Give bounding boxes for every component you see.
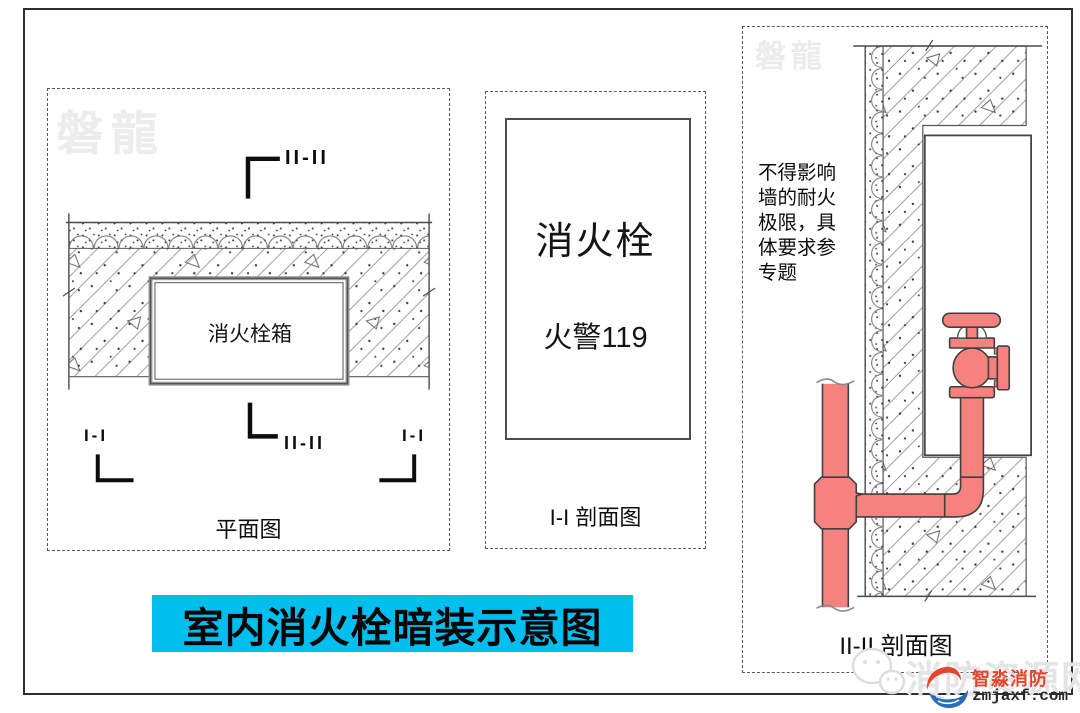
page-title: 室内消火栓暗装示意图 xyxy=(183,594,603,654)
section-label-center: II-II xyxy=(284,433,325,454)
logo-url: zmjaxf.com xyxy=(972,687,1068,705)
note-line: 专题 xyxy=(758,261,868,286)
section-label-left: I-I xyxy=(66,426,126,446)
hydrant-box-label: 消火栓箱 xyxy=(151,280,349,385)
footer-logo: 智淼消防 zmjaxf.com xyxy=(924,664,1074,712)
section-mark-center xyxy=(250,403,278,437)
valve-handwheel xyxy=(943,313,1001,327)
section-label-top: II-II xyxy=(285,147,329,170)
section2-drawing xyxy=(743,27,1047,672)
section1-panel: 消火栓 火警119 I-I 剖面图 xyxy=(485,91,706,549)
wechat-icon xyxy=(848,646,906,698)
plan-caption: 平面图 xyxy=(48,512,449,544)
plan-wall-scallops xyxy=(69,233,429,248)
schematic-page: 磐龍 xyxy=(0,0,1080,713)
valve-stem xyxy=(967,327,978,338)
fire-rating-note: 不得影响 墙的耐火 极限，具 体要求参 专题 xyxy=(758,161,868,286)
section-label-right: I-I xyxy=(384,426,444,446)
valve-top-flange xyxy=(950,338,995,348)
zhimiao-logo-icon xyxy=(924,664,970,712)
note-line: 体要求参 xyxy=(758,236,868,261)
plan-view-panel: 磐龍 xyxy=(47,88,450,551)
section-mark-right xyxy=(379,454,414,480)
valve-inlet-pipe xyxy=(961,398,984,477)
cabinet-text-119: 火警119 xyxy=(486,314,705,356)
note-line: 不得影响 xyxy=(758,161,868,186)
title-bar: 室内消火栓暗装示意图 xyxy=(152,595,633,652)
cabinet-text-hydrant: 消火栓 xyxy=(486,210,705,265)
note-line: 极限，具 xyxy=(758,211,868,236)
section-mark-left xyxy=(98,454,134,480)
pipe-break-top xyxy=(817,379,855,385)
section1-caption: I-I 剖面图 xyxy=(486,500,705,532)
valve-outlet-flange xyxy=(997,346,1009,390)
branch-pipe xyxy=(856,494,945,517)
section2-panel: 磐龍 xyxy=(742,26,1048,673)
tee-fitting xyxy=(815,477,863,529)
hydrant-cabinet-front xyxy=(505,118,691,440)
note-line: 墙的耐火 xyxy=(758,186,868,211)
valve-body xyxy=(953,348,991,388)
section-mark-top xyxy=(248,159,280,199)
